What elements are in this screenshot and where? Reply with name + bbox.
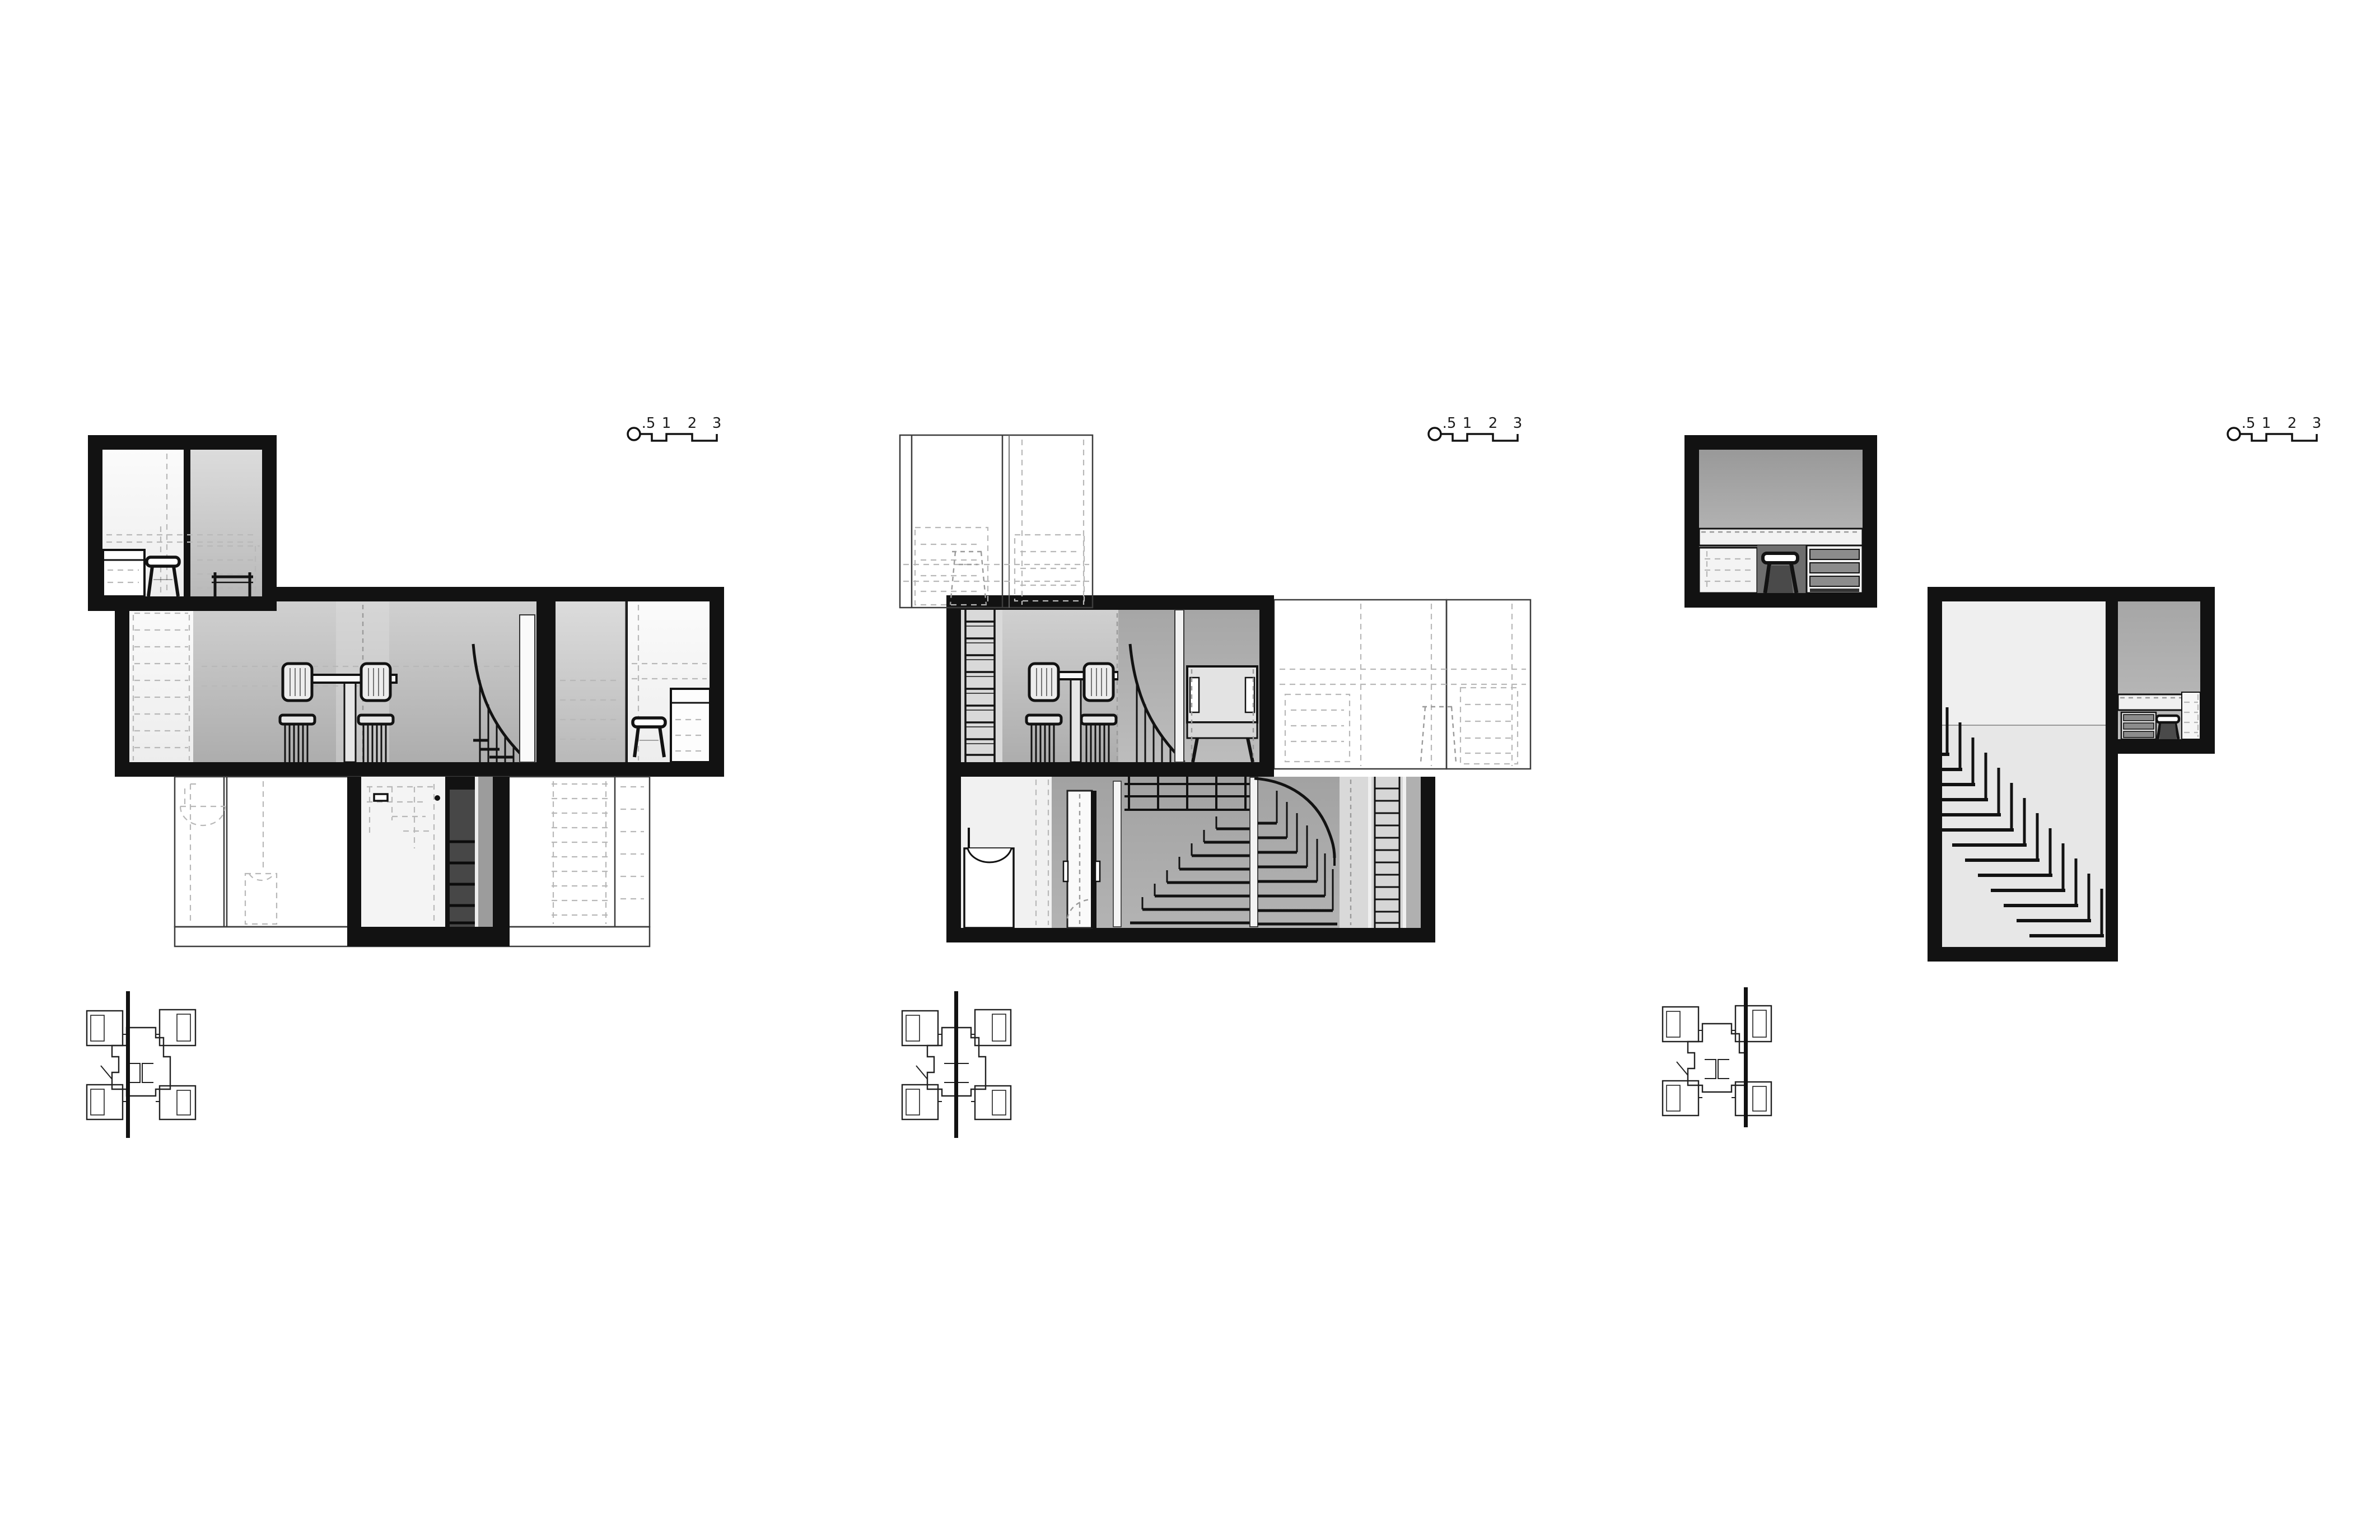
section-panel-1 (87, 415, 724, 1138)
s3-studio-box (1684, 435, 1877, 608)
s2-ladder-lower (1371, 777, 1403, 928)
s1-bedroom-box (88, 435, 277, 611)
s2-elevation-right (1274, 600, 1530, 769)
s3-scale-bar (2228, 415, 2321, 441)
s1-door-handle-dot (435, 795, 440, 801)
s2-key-plan (902, 991, 1011, 1138)
s3-shelf-dashed (2182, 692, 2200, 739)
s3-key-plan (1663, 987, 1771, 1127)
s3-drawers-upper (2121, 712, 2156, 739)
s3-drawers (1807, 545, 1863, 593)
s3-cabinet-dashed (1699, 548, 1757, 593)
s2-lower-level (946, 777, 1435, 942)
s3-lshape-box (1928, 587, 2215, 962)
s3-section-cut-line (1744, 987, 1748, 1127)
section-panel-3 (1663, 415, 2321, 1127)
s1-lower-level (175, 777, 650, 946)
s1-stair-core (347, 777, 510, 946)
section-panel-2 (900, 415, 1530, 1138)
sheet: .5 1 2 3 (0, 0, 2380, 1540)
s3-workbench (1699, 529, 1863, 545)
s1-stair-beyond (552, 781, 644, 924)
s1-section-cut-line (126, 991, 130, 1138)
s1-desk (103, 550, 144, 596)
sections-drawing: .5 1 2 3 (0, 0, 2380, 1540)
s2-living-level (946, 595, 1274, 777)
s1-door-panel (520, 615, 535, 762)
s1-counter (671, 689, 710, 762)
s2-elevation-left (900, 435, 1093, 608)
s1-closet (129, 601, 193, 762)
s1-sink-outline (180, 784, 225, 825)
s2-section-cut-line (954, 991, 958, 1138)
s1-wall-fixture (374, 794, 388, 801)
s1-scale-bar (628, 415, 721, 441)
s2-stair-pole-upper (1175, 610, 1184, 762)
s1-living-level (115, 587, 724, 777)
s1-key-plan (87, 991, 195, 1138)
s2-door (1063, 791, 1100, 928)
s3-stool-upper (2157, 716, 2179, 739)
s1-toilet-outline (245, 874, 277, 924)
s1-room-b (556, 601, 626, 762)
s2-scale-bar (1429, 415, 1522, 441)
